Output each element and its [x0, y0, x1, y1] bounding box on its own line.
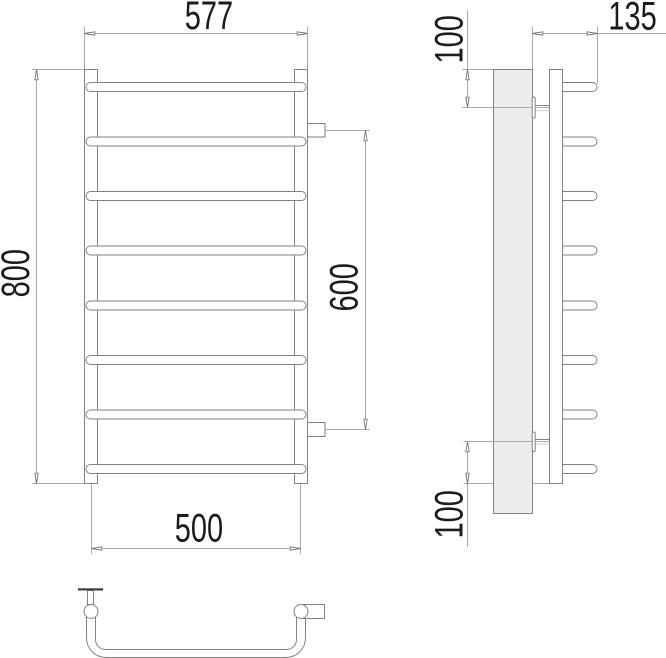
svg-text:100: 100	[427, 490, 472, 538]
svg-text:135: 135	[608, 0, 656, 38]
svg-text:800: 800	[0, 249, 38, 297]
svg-text:600: 600	[322, 263, 367, 311]
svg-text:100: 100	[427, 15, 472, 63]
svg-text:500: 500	[175, 506, 223, 551]
svg-text:577: 577	[185, 0, 233, 38]
